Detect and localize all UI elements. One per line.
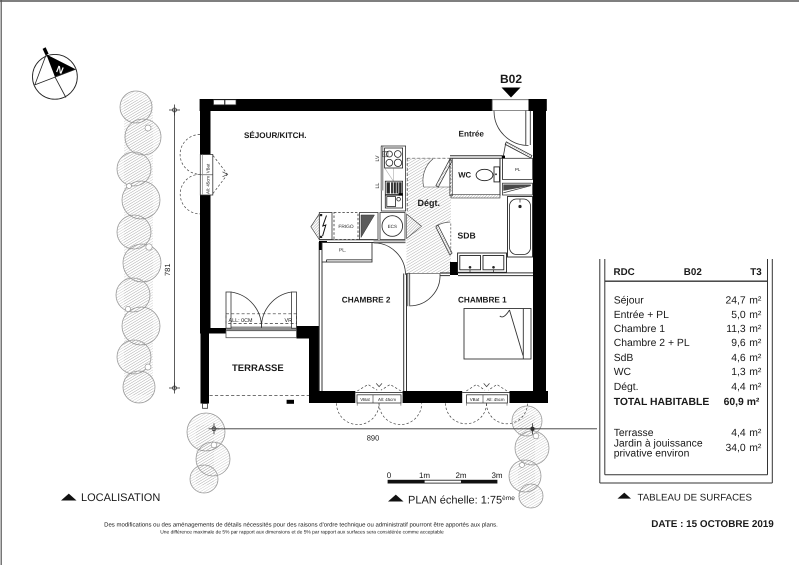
svg-text:SDB: SDB [458, 231, 476, 241]
svg-text:3m: 3m [491, 471, 502, 480]
svg-text:Séjour: Séjour [614, 295, 645, 306]
svg-text:60,9 m²: 60,9 m² [724, 397, 760, 408]
svg-text:CHAMBRE 2: CHAMBRE 2 [342, 296, 391, 305]
svg-text:TABLEAU DE SURFACES: TABLEAU DE SURFACES [638, 492, 753, 503]
svg-text:VBat: VBat [205, 163, 210, 173]
svg-text:4,4: 4,4 [731, 382, 746, 393]
svg-text:m²: m² [749, 443, 762, 454]
svg-text:m²: m² [749, 338, 762, 349]
svg-text:Entrée: Entrée [459, 130, 485, 139]
svg-text:ECS: ECS [388, 224, 397, 229]
svg-text:B02: B02 [500, 72, 522, 86]
svg-text:ALL: 0CM: ALL: 0CM [229, 318, 253, 324]
svg-text:24,7: 24,7 [725, 295, 745, 306]
svg-text:FRIGO: FRIGO [338, 224, 353, 230]
svg-text:PL: PL [515, 167, 521, 172]
svg-text:m²: m² [749, 310, 762, 321]
svg-text:9,6: 9,6 [731, 338, 746, 349]
svg-text:VR: VR [285, 318, 293, 324]
svg-text:SdB: SdB [614, 353, 634, 364]
svg-text:CHAMBRE 1: CHAMBRE 1 [458, 296, 507, 305]
svg-text:m²: m² [749, 324, 762, 335]
svg-text:1m: 1m [419, 471, 430, 480]
svg-text:Une différence maximale de 5%: Une différence maximale de 5% par rappor… [160, 529, 444, 535]
svg-text:m²: m² [749, 295, 762, 306]
svg-text:m²: m² [749, 382, 762, 393]
svg-text:WC: WC [614, 367, 632, 378]
svg-text:All: 45cm: All: 45cm [378, 397, 396, 402]
svg-text:LOCALISATION: LOCALISATION [81, 492, 160, 504]
svg-text:VBat: VBat [360, 397, 370, 402]
svg-text:PL.: PL. [339, 248, 346, 254]
svg-text:0: 0 [387, 471, 392, 480]
svg-text:Dégt.: Dégt. [418, 198, 441, 208]
svg-text:4,4: 4,4 [731, 428, 746, 439]
svg-text:Terrasse: Terrasse [614, 428, 654, 439]
svg-text:privative environ: privative environ [614, 449, 690, 460]
svg-text:Chambre 2 + PL: Chambre 2 + PL [614, 338, 690, 349]
svg-text:LL: LL [375, 183, 381, 189]
svg-text:m²: m² [749, 428, 762, 439]
svg-text:TERRASSE: TERRASSE [232, 363, 284, 374]
svg-text:11,3: 11,3 [726, 324, 746, 335]
svg-text:5,0: 5,0 [731, 310, 746, 321]
svg-text:781: 781 [163, 263, 172, 276]
svg-text:34,0: 34,0 [725, 443, 745, 454]
svg-text:Dégt.: Dégt. [614, 382, 639, 393]
svg-text:WC: WC [458, 171, 471, 180]
svg-text:SÉJOUR/KITCH.: SÉJOUR/KITCH. [244, 130, 307, 140]
svg-text:1,3: 1,3 [731, 367, 746, 378]
svg-text:VBat: VBat [470, 397, 480, 402]
svg-text:2m: 2m [455, 471, 466, 480]
svg-text:RDC: RDC [614, 267, 635, 278]
svg-text:PLAN échelle: 1:75ème: PLAN échelle: 1:75ème [408, 494, 515, 506]
svg-text:Entrée + PL: Entrée + PL [614, 310, 669, 321]
svg-text:890: 890 [367, 434, 380, 443]
svg-text:DATE : 15 OCTOBRE 2019: DATE : 15 OCTOBRE 2019 [651, 519, 774, 530]
svg-text:Chambre 1: Chambre 1 [614, 324, 666, 335]
svg-text:4,6: 4,6 [731, 353, 746, 364]
svg-text:m²: m² [749, 367, 762, 378]
svg-text:TOTAL HABITABLE: TOTAL HABITABLE [614, 397, 710, 408]
svg-text:B02: B02 [684, 267, 703, 278]
svg-text:All: 45cm: All: 45cm [486, 397, 504, 402]
svg-text:m²: m² [749, 353, 762, 364]
svg-text:Des modifications ou des aména: Des modifications ou des aménagements de… [104, 521, 498, 528]
svg-text:LV: LV [375, 155, 381, 161]
svg-text:T3: T3 [750, 267, 762, 278]
svg-text:All: 45cm: All: 45cm [205, 176, 210, 194]
